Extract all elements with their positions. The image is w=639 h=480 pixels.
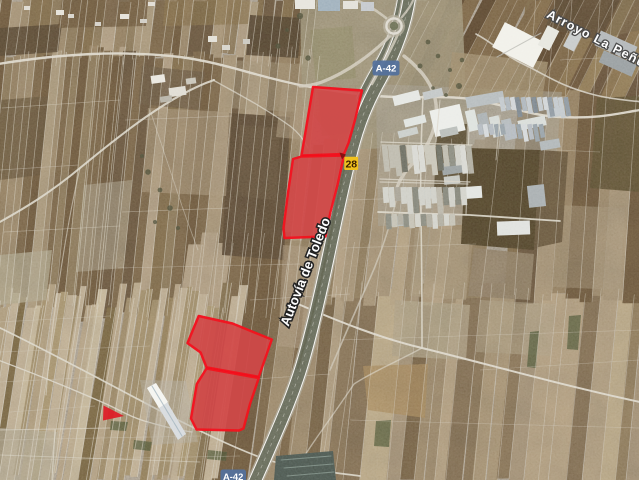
svg-text:28: 28 — [345, 158, 357, 170]
svg-text:A-42: A-42 — [376, 64, 397, 75]
svg-text:A-42: A-42 — [223, 471, 243, 480]
